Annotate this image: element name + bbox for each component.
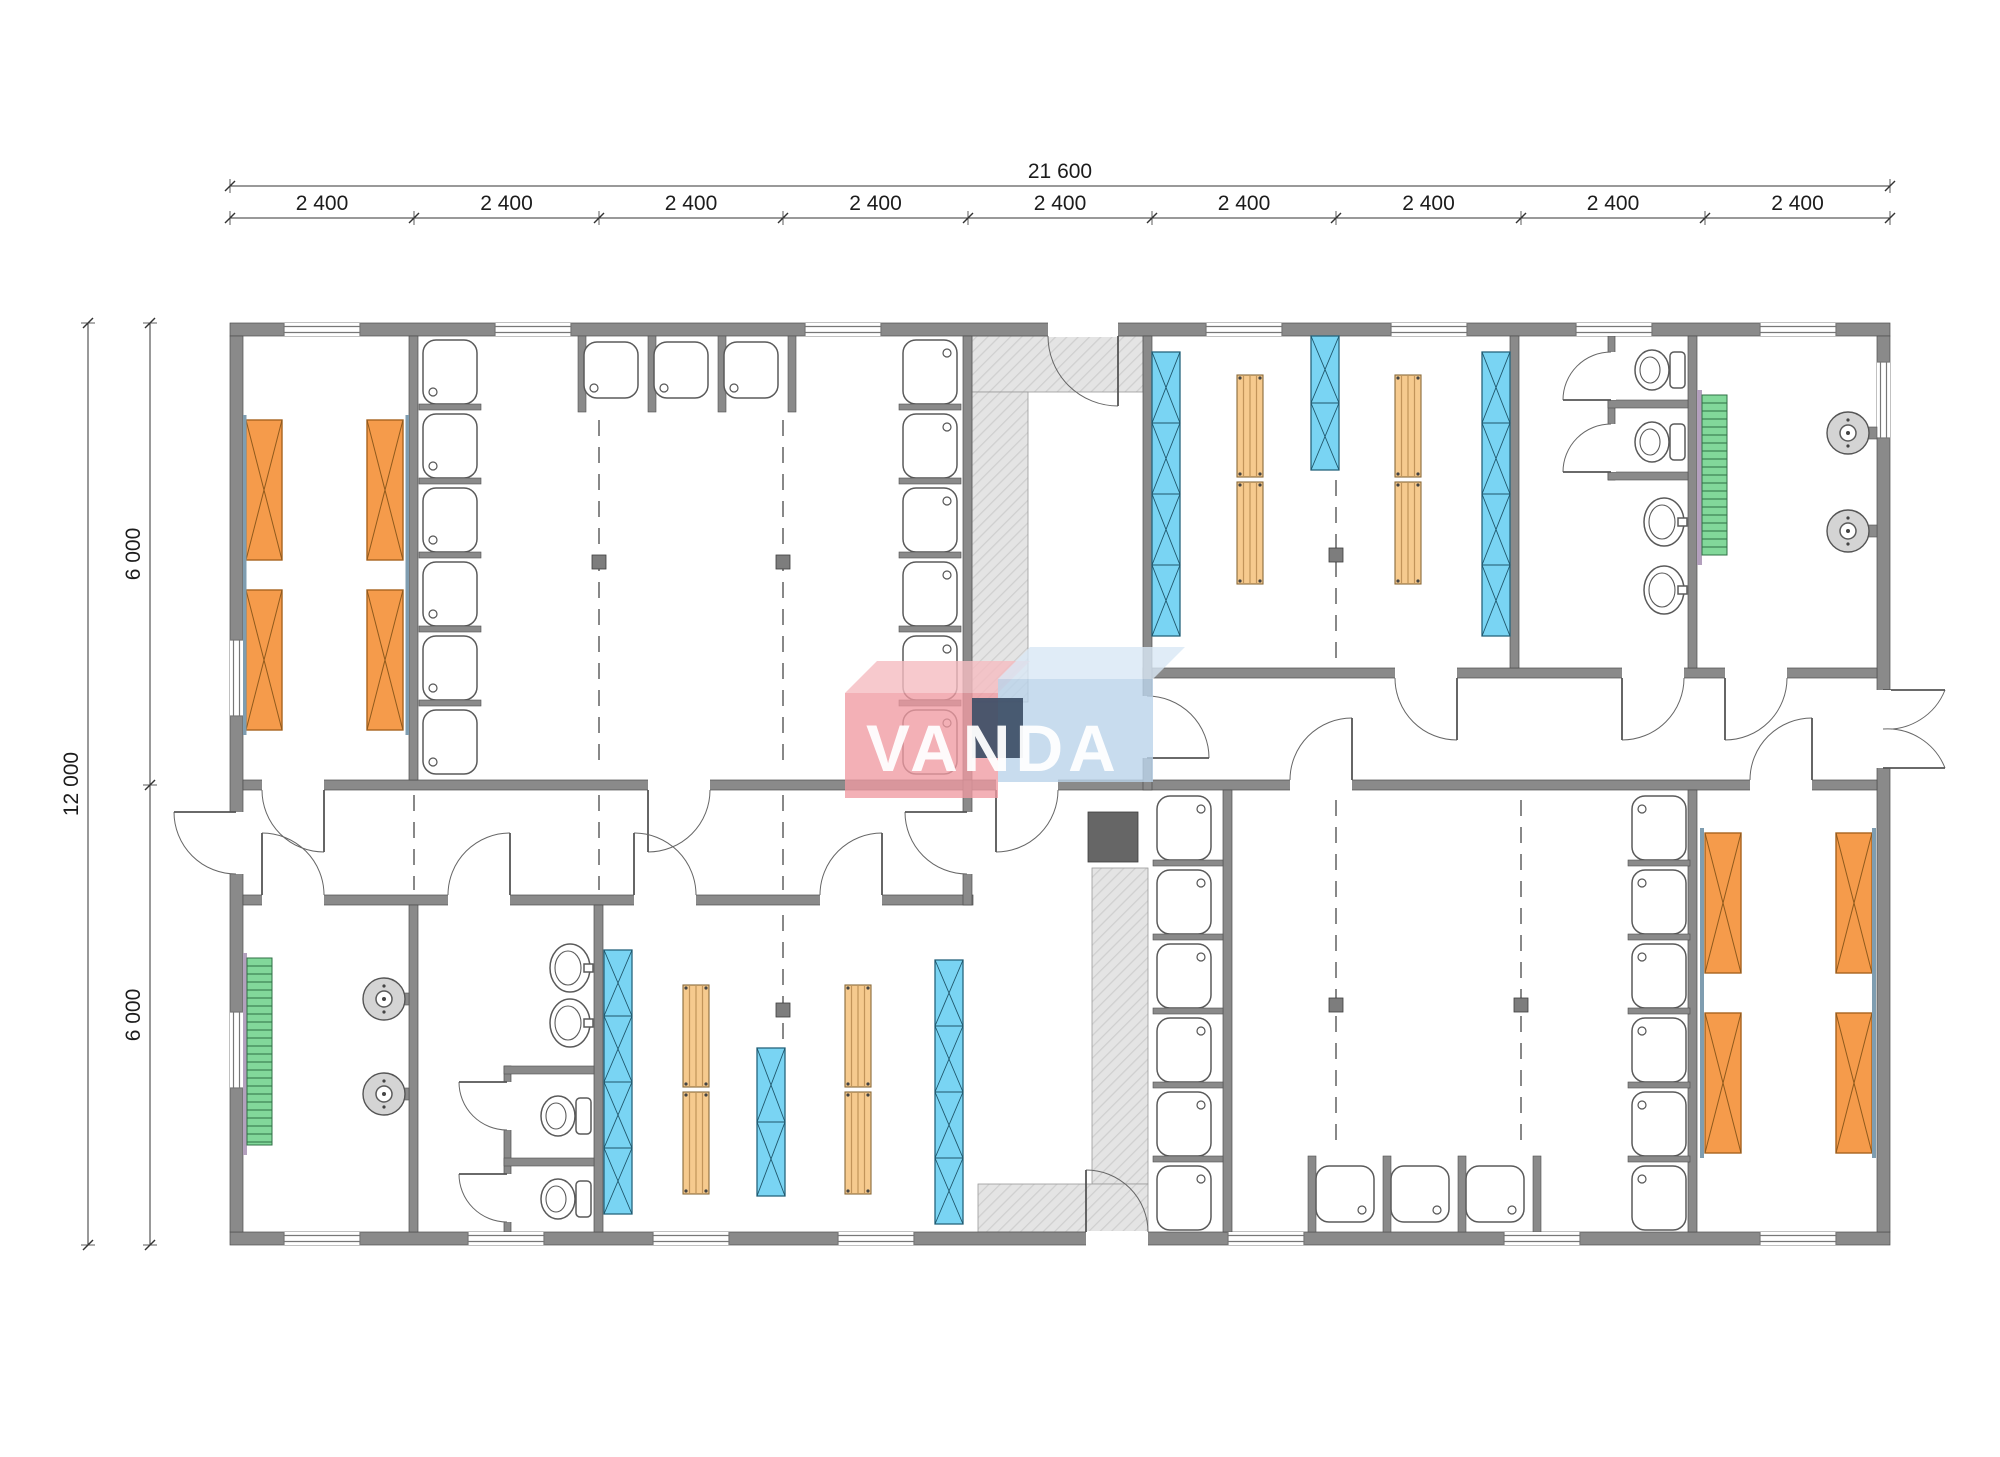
- shower-partition: [1628, 934, 1690, 940]
- window: [284, 1232, 360, 1245]
- shower-partition: [419, 626, 481, 632]
- window: [1877, 362, 1890, 438]
- door: [1750, 718, 1812, 791]
- toilet: [541, 1179, 591, 1219]
- column-post: [592, 555, 606, 569]
- door-swing-arc: [1395, 678, 1457, 740]
- shower-tray: [1157, 870, 1211, 934]
- locker-cabinet: [935, 960, 963, 1224]
- dimension-label: 2 400: [665, 192, 718, 215]
- drain-icon: [429, 610, 437, 618]
- wall: [409, 905, 418, 1232]
- dimension-label: 2 400: [1587, 192, 1640, 215]
- drain-icon: [1433, 1206, 1441, 1214]
- window: [805, 323, 881, 336]
- floorplan-page: VANDA21 6002 4002 4002 4002 4002 4002 40…: [0, 0, 2000, 1457]
- drain-icon: [943, 423, 951, 431]
- partition-wall: [1383, 1156, 1391, 1232]
- water-heater: [363, 1073, 409, 1115]
- door: [648, 779, 710, 852]
- water-heater: [363, 978, 409, 1020]
- drain-icon: [1638, 1175, 1646, 1183]
- entrance-platform: [1092, 868, 1148, 1184]
- shower-tray: [1157, 796, 1211, 860]
- door: [1563, 424, 1616, 472]
- window: [1391, 323, 1467, 336]
- door-swing-arc: [1725, 678, 1787, 740]
- door-swing-arc: [648, 790, 710, 852]
- entrance-platform: [972, 392, 1028, 702]
- partition-wall: [504, 1158, 594, 1166]
- bench: [1395, 375, 1421, 477]
- drain-icon: [1197, 953, 1205, 961]
- locker-cabinet: [1482, 352, 1510, 636]
- window: [1760, 1232, 1836, 1245]
- shower-partition: [899, 552, 961, 558]
- window: [495, 323, 571, 336]
- wall: [1877, 336, 1890, 1232]
- shower-tray: [1632, 1166, 1686, 1230]
- door-swing-arc: [1563, 424, 1611, 472]
- shower-tray: [1466, 1166, 1524, 1222]
- locker-cabinet: [1311, 336, 1339, 470]
- shower-tray: [654, 342, 708, 398]
- shower-partition: [1153, 934, 1223, 940]
- shower-tray: [423, 340, 477, 404]
- locker-cabinet: [1152, 352, 1180, 636]
- shower-tray: [423, 488, 477, 552]
- drain-icon: [943, 497, 951, 505]
- door: [1725, 667, 1787, 740]
- partition-wall: [788, 336, 796, 412]
- door-swing-arc: [905, 812, 967, 874]
- wall-lining-strip: [243, 953, 247, 1155]
- door-swing-arc: [1290, 718, 1352, 780]
- door-swing-arc: [262, 790, 324, 852]
- drain-icon: [1638, 1101, 1646, 1109]
- bench: [1237, 375, 1263, 477]
- wall: [230, 336, 243, 1232]
- dimension-label: 2 400: [1034, 192, 1087, 215]
- door: [1876, 690, 1945, 768]
- shower-partition: [419, 404, 481, 410]
- shower-partition: [899, 626, 961, 632]
- drain-icon: [429, 684, 437, 692]
- wall: [1510, 336, 1519, 668]
- window: [230, 1012, 243, 1088]
- shower-partition: [1153, 1008, 1223, 1014]
- partition-wall: [1308, 1156, 1316, 1232]
- shower-partition: [1153, 860, 1223, 866]
- shower-tray: [1157, 1166, 1211, 1230]
- door-swing-arc: [1750, 718, 1812, 780]
- drain-icon: [1508, 1206, 1516, 1214]
- drain-icon: [730, 384, 738, 392]
- sink: [1644, 566, 1687, 614]
- shower-tray: [724, 342, 778, 398]
- tap-icon: [584, 964, 593, 972]
- dimension-label: 2 400: [1402, 192, 1455, 215]
- column-post: [1329, 998, 1343, 1012]
- shower-tray: [1632, 796, 1686, 860]
- door: [1395, 667, 1457, 740]
- door-swing-arc: [634, 833, 696, 895]
- bench: [683, 1092, 709, 1194]
- toilet: [1635, 422, 1685, 462]
- door-swing-arc: [174, 812, 236, 874]
- sink: [1644, 498, 1687, 546]
- shower-tray: [903, 340, 957, 404]
- wall: [594, 905, 603, 1232]
- tap-icon: [584, 1019, 593, 1027]
- locker-cabinet: [757, 1048, 785, 1196]
- wall-lining-strip: [1697, 390, 1702, 565]
- bed-headboard-strip: [406, 415, 410, 735]
- column-post: [776, 555, 790, 569]
- door-swing-arc: [459, 1082, 507, 1130]
- partition-wall: [1608, 472, 1688, 480]
- water-heater: [1827, 510, 1877, 552]
- door-swing-arc: [459, 1174, 507, 1222]
- locker-cabinet: [604, 950, 632, 1214]
- bunk-bed: [246, 420, 282, 560]
- shower-partition: [419, 700, 481, 706]
- shower-tray: [1632, 944, 1686, 1008]
- bench: [1395, 482, 1421, 584]
- window: [1576, 323, 1652, 336]
- drain-icon: [1197, 1175, 1205, 1183]
- drain-icon: [943, 571, 951, 579]
- shower-partition: [1628, 1008, 1690, 1014]
- drain-icon: [1638, 1027, 1646, 1035]
- dimension-label: 2 400: [1771, 192, 1824, 215]
- dimension-label: 2 400: [480, 192, 533, 215]
- sink: [550, 999, 593, 1047]
- door: [174, 812, 244, 874]
- shower-tray: [423, 562, 477, 626]
- dimension-label: 2 400: [1218, 192, 1271, 215]
- drain-icon: [429, 758, 437, 766]
- shower-partition: [419, 478, 481, 484]
- shower-tray: [1157, 944, 1211, 1008]
- partition-wall: [504, 1066, 594, 1074]
- shower-tray: [1157, 1092, 1211, 1156]
- door-swing-arc: [448, 833, 510, 895]
- shower-partition: [1628, 1156, 1690, 1162]
- window: [230, 640, 243, 716]
- dimension-label: 2 400: [296, 192, 349, 215]
- door-swing-arc: [1622, 678, 1684, 740]
- door-swing-arc: [1563, 352, 1611, 400]
- bunk-bed: [1836, 1013, 1872, 1153]
- shower-partition: [1153, 1082, 1223, 1088]
- drain-icon: [1197, 1027, 1205, 1035]
- drain-icon: [1197, 879, 1205, 887]
- tap-icon: [1678, 586, 1687, 594]
- radiator: [247, 958, 272, 1145]
- shower-tray: [1632, 1092, 1686, 1156]
- shower-tray: [1632, 870, 1686, 934]
- window: [1504, 1232, 1580, 1245]
- drain-icon: [429, 388, 437, 396]
- shower-partition: [899, 478, 961, 484]
- bunk-bed: [246, 590, 282, 730]
- door: [1290, 718, 1352, 791]
- wall: [1688, 336, 1697, 668]
- drain-icon: [590, 384, 598, 392]
- drain-icon: [1197, 1101, 1205, 1109]
- window: [1760, 323, 1836, 336]
- shower-tray: [1391, 1166, 1449, 1222]
- water-heater: [1827, 412, 1877, 454]
- door-swing-arc: [1883, 729, 1945, 768]
- partition-wall: [1533, 1156, 1541, 1232]
- drain-icon: [943, 349, 951, 357]
- bunk-bed: [1705, 1013, 1741, 1153]
- partition-wall: [1608, 400, 1688, 408]
- sink: [550, 944, 593, 992]
- shower-tray: [584, 342, 638, 398]
- bed-headboard-strip: [1700, 828, 1704, 1158]
- shower-tray: [903, 488, 957, 552]
- bunk-bed: [367, 420, 403, 560]
- window: [468, 1232, 544, 1245]
- radiator: [1702, 395, 1727, 555]
- column-post: [1329, 548, 1343, 562]
- door: [1622, 667, 1684, 740]
- door: [634, 833, 696, 906]
- bunk-bed: [1836, 833, 1872, 973]
- toilet: [541, 1096, 591, 1136]
- door: [448, 833, 510, 906]
- bed-headboard-strip: [1872, 828, 1876, 1158]
- shower-partition: [1628, 1082, 1690, 1088]
- watermark-text: VANDA: [866, 711, 1121, 785]
- window: [653, 1232, 729, 1245]
- door-swing-arc: [1147, 696, 1209, 758]
- entrance-platform: [978, 1184, 1148, 1232]
- shower-partition: [899, 404, 961, 410]
- shower-partition: [1153, 1156, 1223, 1162]
- partition-wall: [1458, 1156, 1466, 1232]
- shower-partition: [1628, 860, 1690, 866]
- door: [1563, 352, 1616, 400]
- column-post: [1514, 998, 1528, 1012]
- floor-plan-canvas: VANDA21 6002 4002 4002 4002 4002 4002 40…: [0, 0, 2000, 1457]
- wall: [1223, 790, 1232, 1232]
- door: [820, 833, 882, 906]
- tap-icon: [1678, 518, 1687, 526]
- column-post: [776, 1003, 790, 1017]
- bunk-bed: [367, 590, 403, 730]
- dimension-label: 21 600: [1028, 160, 1092, 183]
- shower-tray: [423, 710, 477, 774]
- door: [996, 779, 1058, 852]
- bunk-bed: [1705, 833, 1741, 973]
- floor-heater: [1088, 812, 1138, 862]
- shower-tray: [1157, 1018, 1211, 1082]
- drain-icon: [1638, 805, 1646, 813]
- drain-icon: [660, 384, 668, 392]
- drain-icon: [1358, 1206, 1366, 1214]
- door: [459, 1082, 512, 1130]
- toilet: [1635, 350, 1685, 390]
- shower-tray: [903, 562, 957, 626]
- bench: [1237, 482, 1263, 584]
- bench: [845, 985, 871, 1087]
- shower-tray: [423, 636, 477, 700]
- door: [905, 812, 973, 874]
- drain-icon: [429, 462, 437, 470]
- shower-tray: [903, 414, 957, 478]
- shower-tray: [423, 414, 477, 478]
- shower-tray: [1316, 1166, 1374, 1222]
- window: [1228, 1232, 1304, 1245]
- shower-partition: [419, 552, 481, 558]
- door-swing-arc: [996, 790, 1058, 852]
- drain-icon: [1638, 953, 1646, 961]
- bed-headboard-strip: [243, 415, 247, 735]
- dimension-label: 6 000: [122, 989, 145, 1042]
- door: [459, 1174, 512, 1222]
- window: [284, 323, 360, 336]
- door-swing-arc: [1883, 690, 1945, 729]
- drain-icon: [1638, 879, 1646, 887]
- door-swing-arc: [262, 833, 324, 895]
- bench: [845, 1092, 871, 1194]
- window: [838, 1232, 914, 1245]
- dimension-label: 6 000: [122, 528, 145, 581]
- vanda-watermark: VANDA: [845, 647, 1185, 798]
- bench: [683, 985, 709, 1087]
- logo-box-top: [998, 647, 1185, 679]
- door-swing-arc: [820, 833, 882, 895]
- drain-icon: [943, 645, 951, 653]
- wall: [409, 336, 418, 780]
- shower-tray: [1632, 1018, 1686, 1082]
- dimension-label: 12 000: [60, 752, 83, 816]
- drain-icon: [429, 536, 437, 544]
- window: [1206, 323, 1282, 336]
- drain-icon: [1197, 805, 1205, 813]
- dimension-label: 2 400: [849, 192, 902, 215]
